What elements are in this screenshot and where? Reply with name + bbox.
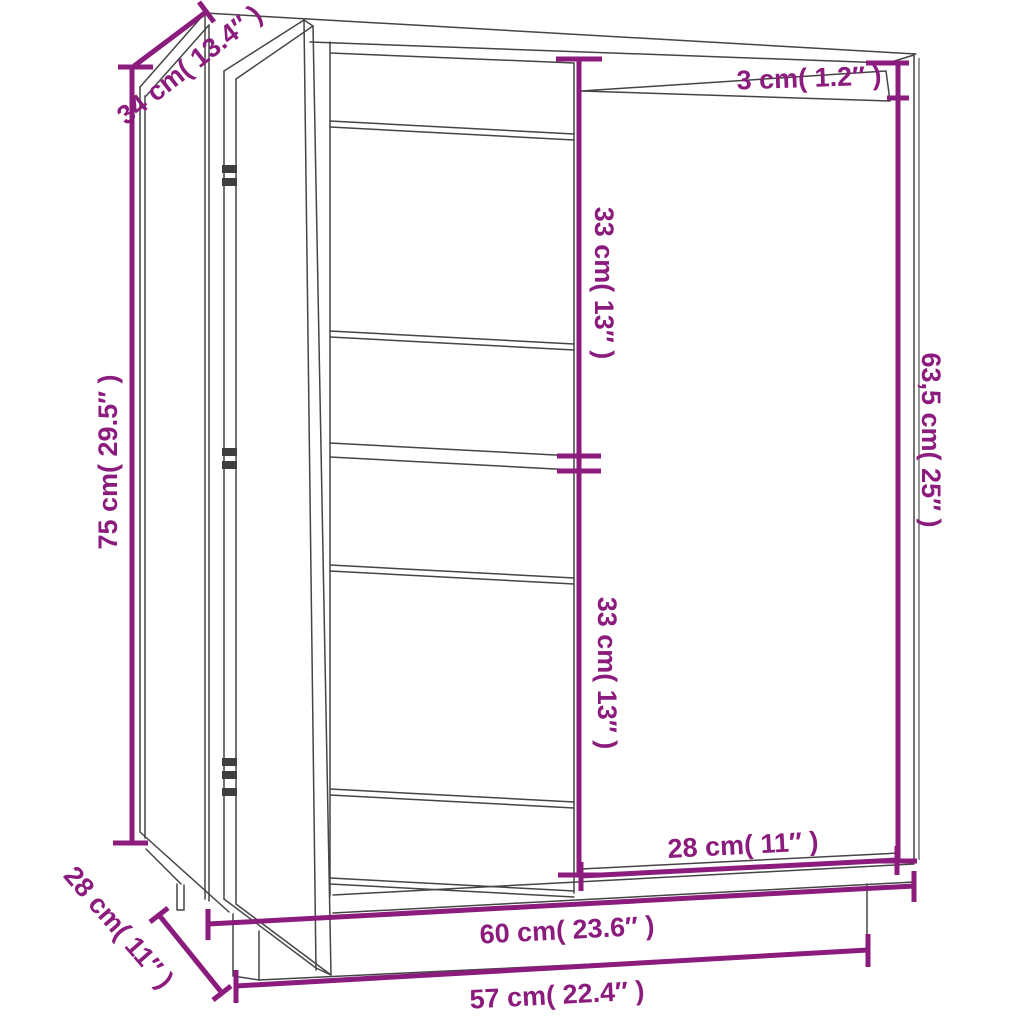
front-left-leg bbox=[177, 884, 184, 910]
cabinet-dimension-diagram: 34 cm( 13.4″ ) 75 cm( 29.5″ ) 28 cm( 11″… bbox=[0, 0, 1024, 1024]
hinge-bottom-icon bbox=[222, 758, 237, 796]
shelf-2 bbox=[330, 331, 574, 350]
interior-bottom-edge bbox=[330, 878, 574, 897]
dim-label-shelf-lower: 33 cm( 13″ ) bbox=[592, 597, 622, 750]
dim-label-top-thickness: 3 cm( 1.2″ ) bbox=[736, 60, 882, 95]
dim-label-width-bottom: 57 cm( 22.4″ ) bbox=[469, 975, 645, 1014]
dim-label-door-height: 63,5 cm( 25″ ) bbox=[916, 352, 946, 527]
dim-label-height-left: 75 cm( 29.5″ ) bbox=[93, 374, 123, 549]
dim-label-shelf-upper: 33 cm( 13″ ) bbox=[589, 207, 619, 360]
open-door-free-edge bbox=[304, 20, 331, 975]
side-bottom-inner-edge bbox=[146, 849, 181, 884]
dim-label-depth-bottom: 28 cm( 11″ ) bbox=[58, 861, 180, 995]
diagram-svg: 34 cm( 13.4″ ) 75 cm( 29.5″ ) 28 cm( 11″… bbox=[0, 0, 1024, 1024]
shelf-1 bbox=[330, 121, 574, 140]
shelf-5 bbox=[330, 789, 574, 808]
dim-label-width-top: 60 cm( 23.6″ ) bbox=[479, 910, 655, 949]
shelf-middle bbox=[330, 443, 574, 470]
top-back-edge bbox=[205, 13, 916, 54]
interior-top-edge bbox=[330, 53, 574, 63]
tick bbox=[199, 2, 214, 22]
shelf-4 bbox=[330, 565, 574, 584]
